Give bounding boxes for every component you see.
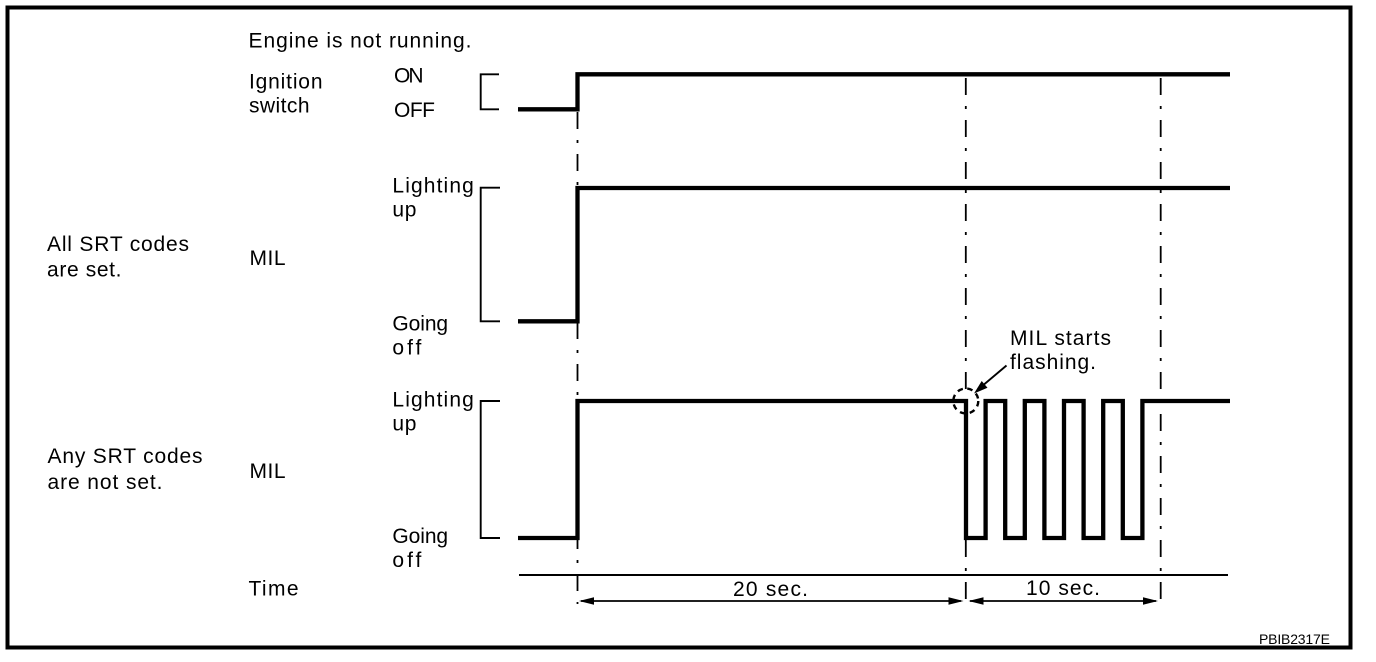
- svg-text:Time: Time: [249, 578, 299, 601]
- svg-text:Going: Going: [392, 525, 448, 548]
- svg-text:10 sec.: 10 sec.: [1026, 577, 1100, 600]
- svg-text:Engine is not running.: Engine is not running.: [249, 30, 472, 53]
- svg-text:Lighting: Lighting: [392, 175, 473, 198]
- svg-text:are not set.: are not set.: [48, 471, 163, 494]
- svg-text:Any SRT codes: Any SRT codes: [48, 445, 203, 468]
- svg-text:off: off: [392, 549, 421, 572]
- svg-text:MIL: MIL: [250, 247, 286, 270]
- svg-text:up: up: [392, 413, 416, 436]
- svg-text:20 sec.: 20 sec.: [733, 578, 808, 601]
- svg-text:All SRT codes: All SRT codes: [47, 233, 189, 256]
- svg-text:PBIB2317E: PBIB2317E: [1259, 631, 1330, 647]
- svg-text:flashing.: flashing.: [1010, 351, 1096, 374]
- svg-text:Ignition: Ignition: [249, 70, 323, 93]
- svg-text:up: up: [392, 199, 416, 222]
- svg-text:switch: switch: [249, 94, 310, 117]
- svg-text:OFF: OFF: [394, 99, 435, 122]
- svg-text:ON: ON: [394, 65, 424, 88]
- svg-text:Lighting: Lighting: [392, 389, 473, 412]
- svg-text:are set.: are set.: [47, 258, 122, 281]
- svg-text:MIL: MIL: [250, 460, 286, 483]
- svg-text:MIL starts: MIL starts: [1010, 327, 1111, 350]
- svg-text:off: off: [392, 337, 421, 360]
- svg-text:Going: Going: [392, 313, 448, 336]
